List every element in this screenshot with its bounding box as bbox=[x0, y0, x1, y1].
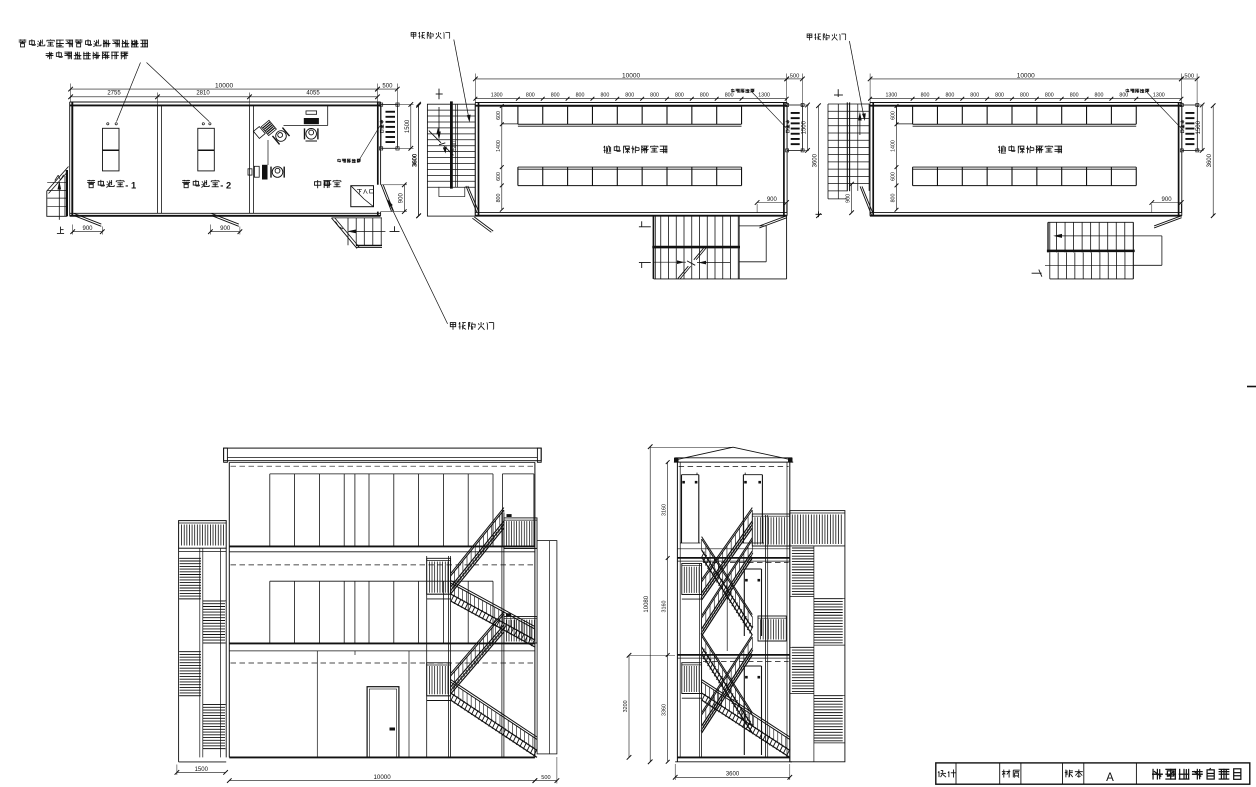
svg-text:10000: 10000 bbox=[373, 774, 391, 781]
svg-text:3160: 3160 bbox=[662, 601, 668, 613]
svg-text:1: 1 bbox=[131, 180, 136, 190]
svg-text:500: 500 bbox=[541, 775, 550, 781]
svg-text:500: 500 bbox=[790, 73, 800, 79]
svg-text:2755: 2755 bbox=[107, 91, 121, 97]
svg-text:1300: 1300 bbox=[885, 92, 897, 98]
svg-text:500: 500 bbox=[1184, 73, 1194, 79]
svg-text:800: 800 bbox=[921, 92, 930, 98]
svg-text:800: 800 bbox=[945, 92, 954, 98]
svg-text:800: 800 bbox=[1095, 92, 1104, 98]
svg-text:1300: 1300 bbox=[1153, 92, 1165, 98]
svg-text:800: 800 bbox=[725, 92, 734, 98]
svg-text:3600: 3600 bbox=[413, 154, 419, 166]
svg-text:3360: 3360 bbox=[662, 704, 668, 716]
svg-text:1400: 1400 bbox=[891, 140, 897, 152]
svg-text:A: A bbox=[1106, 772, 1114, 784]
svg-text:1500: 1500 bbox=[1196, 120, 1202, 134]
svg-text:3160: 3160 bbox=[662, 504, 668, 516]
svg-text:900: 900 bbox=[1162, 197, 1173, 203]
svg-text:10080: 10080 bbox=[644, 595, 650, 612]
svg-text:800: 800 bbox=[1020, 92, 1029, 98]
svg-text:600: 600 bbox=[891, 172, 897, 181]
svg-text:800: 800 bbox=[675, 92, 684, 98]
svg-text:800: 800 bbox=[496, 194, 502, 203]
svg-text:-: - bbox=[125, 180, 128, 190]
svg-text:800: 800 bbox=[995, 92, 1004, 98]
svg-text:800: 800 bbox=[625, 92, 634, 98]
svg-text:600: 600 bbox=[496, 172, 502, 181]
svg-text:800: 800 bbox=[1119, 92, 1128, 98]
svg-text:10000: 10000 bbox=[215, 83, 233, 90]
svg-text:800: 800 bbox=[891, 194, 897, 203]
svg-text:10000: 10000 bbox=[622, 72, 640, 79]
svg-text:600: 600 bbox=[496, 111, 502, 120]
svg-text:1500: 1500 bbox=[405, 119, 411, 133]
svg-text:900: 900 bbox=[398, 193, 404, 204]
svg-text:800: 800 bbox=[600, 92, 609, 98]
svg-text:800: 800 bbox=[1070, 92, 1079, 98]
svg-text:10000: 10000 bbox=[1017, 72, 1035, 79]
svg-text:2: 2 bbox=[226, 180, 231, 190]
svg-text:2500: 2500 bbox=[452, 141, 458, 153]
svg-text:1400: 1400 bbox=[496, 140, 502, 152]
svg-text:900: 900 bbox=[220, 226, 231, 232]
svg-text:1300: 1300 bbox=[491, 92, 503, 98]
svg-text:600: 600 bbox=[891, 111, 897, 120]
svg-text:2810: 2810 bbox=[196, 91, 210, 97]
svg-text:1500: 1500 bbox=[195, 767, 209, 773]
svg-text:900: 900 bbox=[767, 197, 778, 203]
svg-text:3600: 3600 bbox=[1207, 153, 1213, 167]
svg-text:900: 900 bbox=[846, 194, 852, 203]
svg-text:4055: 4055 bbox=[306, 91, 320, 97]
svg-text:3600: 3600 bbox=[813, 153, 819, 167]
svg-text:800: 800 bbox=[551, 92, 560, 98]
svg-text:1500: 1500 bbox=[802, 120, 808, 134]
svg-text:800: 800 bbox=[1045, 92, 1054, 98]
svg-text:3600: 3600 bbox=[726, 772, 740, 778]
svg-text:-: - bbox=[220, 180, 223, 190]
svg-text:900: 900 bbox=[82, 226, 93, 232]
svg-text:1300: 1300 bbox=[758, 92, 770, 98]
svg-text:800: 800 bbox=[526, 92, 535, 98]
svg-text:800: 800 bbox=[970, 92, 979, 98]
svg-text:800: 800 bbox=[700, 92, 709, 98]
svg-text:800: 800 bbox=[576, 92, 585, 98]
svg-text:3200: 3200 bbox=[623, 700, 629, 712]
svg-text:500: 500 bbox=[382, 84, 393, 90]
svg-text:800: 800 bbox=[650, 92, 659, 98]
